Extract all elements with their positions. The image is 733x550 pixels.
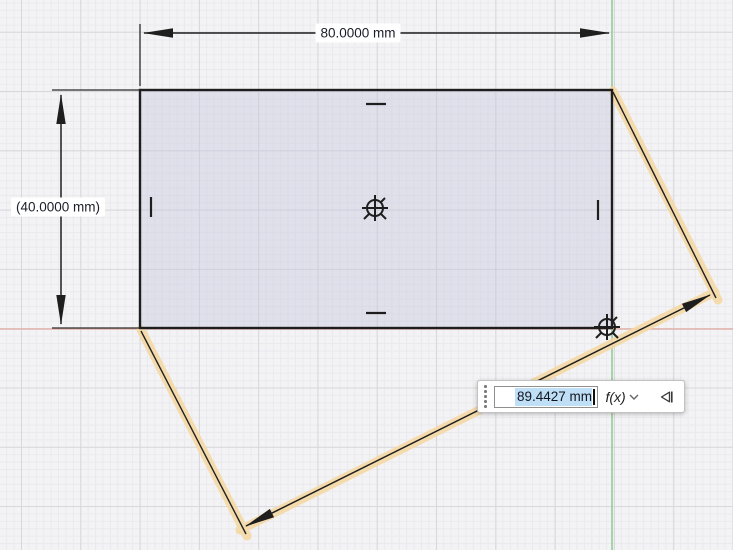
sketch-geometry <box>0 0 733 550</box>
dimension-value-text: 89.4427 mm <box>515 388 592 406</box>
top-dimension-label[interactable]: 80.0000 mm <box>315 24 400 43</box>
dimension-value-input[interactable]: 89.4427 mm <box>494 386 598 408</box>
sketch-canvas[interactable]: 80.0000 mm (40.0000 mm) 89.4427 mm f(x) <box>0 0 733 550</box>
text-caret <box>593 389 595 405</box>
dimension-edit-popover[interactable]: 89.4427 mm f(x) <box>477 380 685 413</box>
chevron-down-icon[interactable] <box>629 394 639 400</box>
left-dimension-label[interactable]: (40.0000 mm) <box>11 198 105 217</box>
fx-expression-button[interactable]: f(x) <box>606 389 626 405</box>
drag-handle-icon[interactable] <box>484 385 487 408</box>
flip-direction-icon[interactable] <box>658 390 675 404</box>
